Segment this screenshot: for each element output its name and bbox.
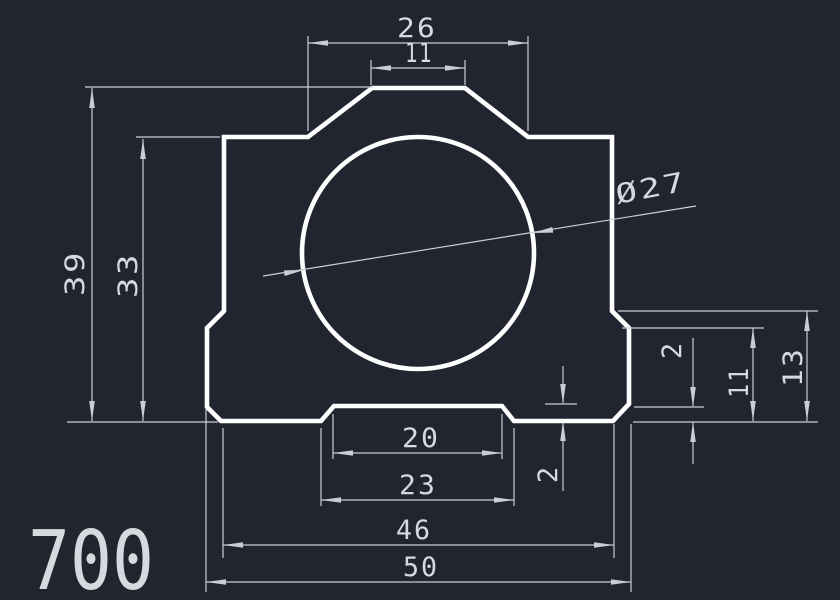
bore-hole-circle[interactable] bbox=[302, 137, 534, 369]
dim-arrowhead bbox=[333, 450, 353, 456]
dim-arrowhead bbox=[223, 542, 243, 548]
dim-arrowhead bbox=[140, 139, 146, 159]
dim-top-width-inner[interactable]: 11 bbox=[371, 38, 465, 85]
dim-label-33[interactable]: 33 bbox=[113, 252, 144, 298]
dim-label-2-bottom[interactable]: 2 bbox=[533, 465, 564, 483]
dim-arrowhead bbox=[140, 401, 146, 421]
dim-notch-width-inner[interactable]: 20 bbox=[333, 414, 502, 459]
dim-arrowhead bbox=[371, 65, 391, 71]
dim-arrowhead bbox=[594, 542, 614, 548]
dim-line-segment bbox=[263, 206, 696, 276]
dim-arrowhead bbox=[750, 328, 756, 348]
part-number-label[interactable]: 700 bbox=[28, 514, 154, 600]
dim-label-11-top[interactable]: 11 bbox=[405, 38, 433, 69]
cad-canvas[interactable]: 26 11 39 33 13 bbox=[0, 0, 840, 600]
dim-arrowhead bbox=[533, 227, 553, 233]
dim-label-39[interactable]: 39 bbox=[60, 250, 91, 296]
dim-label-46[interactable]: 46 bbox=[396, 515, 432, 546]
dim-arrowhead bbox=[750, 401, 756, 421]
dim-arrowhead bbox=[284, 270, 304, 276]
dim-arrowhead bbox=[804, 401, 810, 421]
dim-label-2-right[interactable]: 2 bbox=[657, 341, 688, 359]
dim-arrowhead bbox=[804, 311, 810, 331]
dim-flange-chamfer[interactable]: 2 bbox=[634, 338, 704, 464]
dim-arrowhead bbox=[445, 65, 465, 71]
cad-drawing: 26 11 39 33 13 bbox=[0, 0, 840, 600]
dim-arrowhead bbox=[560, 421, 566, 441]
dim-arrowhead bbox=[560, 384, 566, 404]
dim-arrowhead bbox=[308, 40, 328, 46]
dim-arrowhead bbox=[206, 579, 226, 585]
dim-arrowhead bbox=[690, 422, 696, 442]
dim-arrowhead bbox=[89, 88, 95, 108]
dim-label-50[interactable]: 50 bbox=[403, 552, 439, 583]
dim-notch-depth[interactable]: 2 bbox=[533, 366, 577, 491]
part-geometry bbox=[207, 88, 629, 421]
dim-arrowhead bbox=[321, 497, 341, 503]
dim-height-body[interactable]: 33 bbox=[113, 137, 220, 421]
dim-label-23[interactable]: 23 bbox=[399, 470, 437, 501]
dim-label-diameter[interactable]: Ø27 bbox=[613, 167, 690, 211]
dim-arrowhead bbox=[690, 387, 696, 407]
dim-arrowhead bbox=[611, 579, 631, 585]
dim-label-13[interactable]: 13 bbox=[778, 347, 809, 387]
dim-arrowhead bbox=[494, 497, 514, 503]
dim-label-11-right[interactable]: 11 bbox=[724, 366, 755, 398]
dim-arrowhead bbox=[482, 450, 502, 456]
dim-label-20[interactable]: 20 bbox=[402, 423, 440, 454]
dim-arrowhead bbox=[89, 401, 95, 421]
dim-arrowhead bbox=[508, 40, 528, 46]
